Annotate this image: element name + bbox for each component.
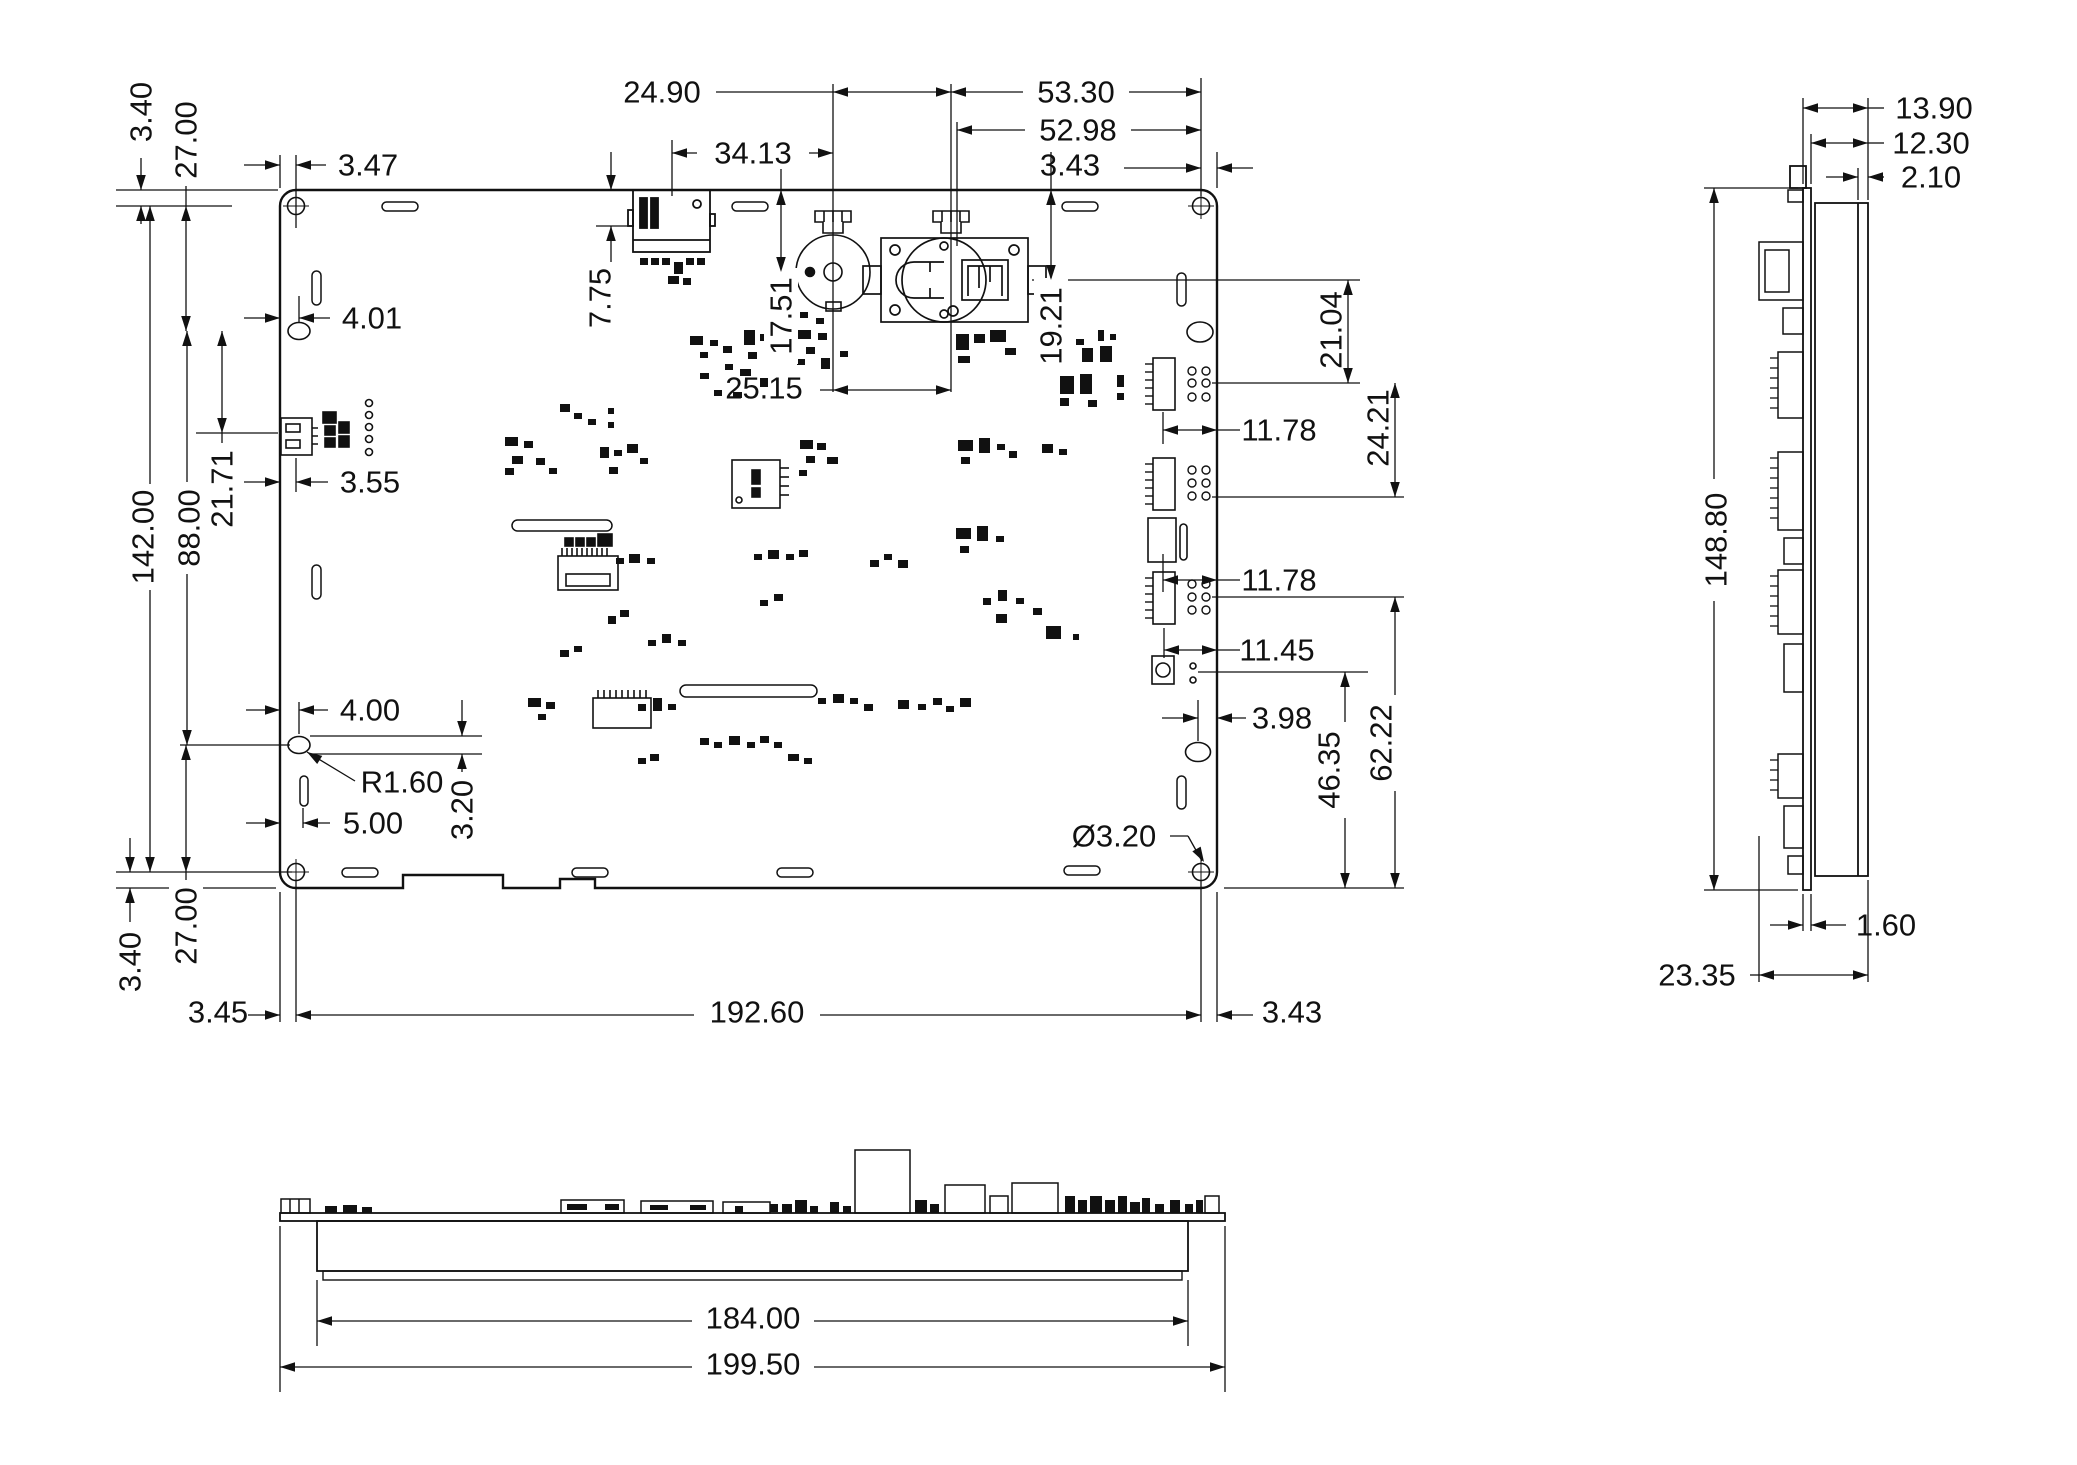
passive-component xyxy=(1059,449,1067,455)
bottom-component xyxy=(915,1200,927,1213)
passive-component xyxy=(614,450,622,456)
dim-label-h1145: 11.45 xyxy=(1239,633,1314,668)
passive-component xyxy=(1073,634,1079,640)
side-view xyxy=(1790,166,1868,890)
passive-component xyxy=(697,258,705,265)
passive-component xyxy=(840,351,848,357)
passive-component xyxy=(714,742,722,748)
dim-label-s2335: 23.35 xyxy=(1658,958,1736,993)
dim-label-v8800: 88.00 xyxy=(172,489,207,567)
passive-component xyxy=(747,742,755,748)
passive-component xyxy=(668,276,679,284)
passive-component xyxy=(816,318,824,324)
cad-drawing: 3.4027.00142.0088.0021.7127.003.403.474.… xyxy=(0,0,2077,1465)
passive-component xyxy=(505,468,514,475)
passive-component xyxy=(996,536,1004,542)
bottom-component xyxy=(1118,1196,1127,1213)
passive-component xyxy=(870,560,879,567)
passive-component xyxy=(678,640,686,646)
bottom-component xyxy=(1170,1200,1180,1213)
bottom-component xyxy=(567,1204,587,1210)
passive-component xyxy=(958,356,970,363)
dim-label-s160: 1.60 xyxy=(1856,908,1916,943)
passive-component xyxy=(674,262,683,274)
dim-label-h500: 5.00 xyxy=(343,806,403,841)
dim-label-v14200: 142.00 xyxy=(126,490,161,585)
dim-label-h343t: 3.43 xyxy=(1040,148,1100,183)
passive-component xyxy=(833,694,844,703)
bottom-component xyxy=(830,1202,839,1213)
bottom-component xyxy=(343,1205,357,1213)
left-edge-connector xyxy=(281,400,373,456)
passive-component xyxy=(760,736,769,743)
dim-label-h400: 4.00 xyxy=(340,693,400,728)
passive-component xyxy=(524,441,533,448)
bottom-display-panel xyxy=(317,1221,1188,1271)
dim-label-b19950: 199.50 xyxy=(706,1347,801,1382)
dim-label-v2104: 21.04 xyxy=(1314,291,1349,369)
passive-component xyxy=(797,359,805,365)
passive-component xyxy=(686,258,694,265)
passive-component xyxy=(1082,348,1093,362)
dim-label-t340: 3.40 xyxy=(124,82,159,142)
passive-component xyxy=(627,444,638,453)
passive-component xyxy=(1060,376,1074,394)
passive-component xyxy=(818,333,827,340)
dim-label-s1230: 12.30 xyxy=(1892,126,1970,161)
passive-component xyxy=(800,312,808,318)
dim-label-h343b: 3.43 xyxy=(1262,995,1322,1030)
passive-component xyxy=(768,550,779,559)
passive-component xyxy=(754,554,762,560)
passive-component xyxy=(729,736,740,745)
passive-component xyxy=(1005,348,1016,355)
passive-component xyxy=(620,610,629,617)
passive-component xyxy=(990,330,1006,342)
drawing-page: 3.4027.00142.0088.0021.7127.003.403.474.… xyxy=(0,0,2077,1465)
passive-component xyxy=(638,704,646,711)
passive-component xyxy=(821,358,830,369)
passive-component xyxy=(1100,346,1112,362)
passive-component xyxy=(1080,374,1092,394)
bottom-component xyxy=(782,1204,792,1213)
dim-label-h401: 4.01 xyxy=(342,301,402,336)
passive-component xyxy=(1117,375,1124,387)
passive-component xyxy=(799,470,807,476)
passive-component xyxy=(647,558,655,564)
passive-component xyxy=(588,419,596,425)
passive-component xyxy=(1098,330,1104,341)
passive-component xyxy=(804,758,812,764)
bottom-component xyxy=(650,1205,668,1210)
passive-component xyxy=(1016,598,1024,604)
passive-component xyxy=(818,698,826,704)
passive-component xyxy=(683,278,691,285)
passive-component xyxy=(505,437,518,446)
passive-component xyxy=(961,457,970,464)
dim-label-h5330: 53.30 xyxy=(1037,75,1115,110)
passive-component xyxy=(958,440,973,451)
dim-label-v4635: 46.35 xyxy=(1312,731,1347,809)
passive-components xyxy=(505,258,1124,764)
bottom-view xyxy=(280,1150,1225,1280)
passive-component xyxy=(748,352,757,359)
passive-component xyxy=(979,438,990,453)
bottom-component xyxy=(325,1206,337,1213)
dim-label-dia320: Ø3.20 xyxy=(1072,819,1156,854)
bottom-component xyxy=(795,1200,807,1213)
passive-component xyxy=(1033,608,1042,615)
battery-holder xyxy=(863,238,1046,322)
dim-label-h347: 3.47 xyxy=(338,148,398,183)
passive-component xyxy=(786,554,794,560)
passive-component xyxy=(629,554,640,563)
side-display-panel xyxy=(1815,203,1868,876)
passive-component xyxy=(1046,626,1061,639)
passive-component xyxy=(946,706,954,712)
passive-component xyxy=(574,413,582,419)
passive-component xyxy=(997,444,1005,450)
bottom-component xyxy=(362,1207,372,1213)
passive-component xyxy=(616,558,624,564)
bottom-view-small-parts xyxy=(325,1196,1203,1213)
bottom-component xyxy=(1185,1204,1193,1213)
passive-component xyxy=(799,550,808,557)
passive-component xyxy=(774,594,783,601)
main-ic-chip xyxy=(732,460,789,508)
side-view-connectors xyxy=(1759,190,1803,874)
dim-label-h1178b: 11.78 xyxy=(1241,563,1316,598)
passive-component xyxy=(651,258,659,265)
dim-label-b2700: 27.00 xyxy=(169,887,204,965)
passive-component xyxy=(609,467,618,474)
passive-component xyxy=(898,560,908,568)
passive-component xyxy=(640,258,648,265)
passive-component xyxy=(998,590,1007,601)
dim-label-s14880: 148.80 xyxy=(1699,493,1734,588)
dim-label-v320: 3.20 xyxy=(445,780,480,840)
passive-component xyxy=(608,408,614,414)
bottom-component xyxy=(1105,1200,1115,1213)
passive-component xyxy=(774,742,782,748)
passive-component xyxy=(600,447,609,458)
bottom-component xyxy=(930,1204,939,1213)
passive-component xyxy=(608,616,616,624)
passive-component xyxy=(806,456,815,463)
right-mid-connector xyxy=(1148,518,1187,562)
dim-label-h2515: 25.15 xyxy=(725,371,803,406)
dim-label-h2490: 24.90 xyxy=(623,75,701,110)
dim-label-s210: 2.10 xyxy=(1901,160,1961,195)
dim-label-t2700: 27.00 xyxy=(169,101,204,179)
passive-component xyxy=(648,640,656,646)
dimension-layer: 3.4027.00142.0088.0021.7127.003.403.474.… xyxy=(113,75,1973,1393)
dim-label-v1751: 17.51 xyxy=(764,277,799,355)
passive-component xyxy=(864,704,873,711)
passive-component xyxy=(760,600,768,606)
bottom-component xyxy=(735,1206,743,1213)
dim-label-h398: 3.98 xyxy=(1252,701,1312,736)
passive-component xyxy=(549,468,557,474)
passive-component xyxy=(898,700,909,709)
bottom-component xyxy=(843,1206,851,1213)
bottom-component xyxy=(1078,1200,1087,1213)
passive-component xyxy=(700,738,709,745)
dim-label-v2421: 24.21 xyxy=(1361,389,1396,467)
passive-component xyxy=(512,456,523,464)
passive-component xyxy=(560,650,569,657)
dim-label-b18400: 184.00 xyxy=(706,1301,801,1336)
bottom-component xyxy=(810,1206,818,1213)
dim-label-r160: R1.60 xyxy=(361,765,444,800)
dim-label-h355: 3.55 xyxy=(340,465,400,500)
passive-component xyxy=(956,528,971,539)
passive-component xyxy=(1042,444,1053,453)
passive-component xyxy=(650,754,659,761)
passive-component xyxy=(700,352,708,358)
passive-component xyxy=(817,443,826,450)
passive-component xyxy=(788,754,799,761)
passive-component xyxy=(850,698,858,704)
passive-component xyxy=(723,346,732,353)
passive-component xyxy=(1060,398,1069,406)
passive-component xyxy=(1076,339,1084,345)
passive-component xyxy=(884,554,892,560)
passive-component xyxy=(710,340,718,346)
dim-label-v2171: 21.71 xyxy=(205,450,240,528)
bottom-component xyxy=(1130,1202,1140,1213)
side-pcb xyxy=(1803,188,1811,890)
dim-label-h19260: 192.60 xyxy=(710,995,805,1030)
passive-component xyxy=(662,634,671,643)
passive-component xyxy=(983,598,991,605)
passive-component xyxy=(653,698,662,711)
passive-component xyxy=(800,440,813,449)
dim-label-h5298: 52.98 xyxy=(1039,113,1117,148)
passive-component xyxy=(977,526,988,541)
passive-component xyxy=(714,390,722,396)
push-switch xyxy=(1152,656,1196,684)
passive-component xyxy=(960,546,969,553)
dim-label-h1178a: 11.78 xyxy=(1241,413,1316,448)
bottom-pcb-bar xyxy=(280,1213,1225,1221)
passive-component xyxy=(560,404,570,412)
dim-label-v1921: 19.21 xyxy=(1034,287,1069,365)
bottom-component xyxy=(690,1205,706,1210)
dim-label-v775: 7.75 xyxy=(583,268,618,328)
passive-component xyxy=(536,458,545,465)
passive-component xyxy=(933,698,942,705)
passive-component xyxy=(918,704,926,710)
bottom-component xyxy=(1142,1198,1150,1213)
bottom-component xyxy=(605,1204,619,1210)
passive-component xyxy=(690,336,703,345)
dim-label-b340: 3.40 xyxy=(113,932,148,992)
passive-component xyxy=(574,646,582,652)
passive-component xyxy=(700,373,709,379)
dim-label-h345: 3.45 xyxy=(188,995,248,1030)
passive-component xyxy=(668,704,676,710)
passive-component xyxy=(744,330,755,345)
passive-component xyxy=(528,698,541,707)
passive-component xyxy=(725,364,733,370)
passive-component xyxy=(806,347,815,354)
passive-component xyxy=(1088,400,1097,407)
passive-component xyxy=(798,330,811,339)
sd-card-slot xyxy=(628,190,715,252)
bottom-component xyxy=(1155,1204,1164,1213)
passive-component xyxy=(960,698,971,707)
bottom-component xyxy=(1065,1196,1075,1213)
passive-component xyxy=(638,758,646,764)
passive-component xyxy=(996,614,1007,623)
passive-component xyxy=(956,334,969,350)
bottom-component xyxy=(770,1204,778,1212)
passive-component xyxy=(546,702,555,709)
passive-component xyxy=(1009,451,1017,458)
passive-component xyxy=(608,422,614,428)
passive-component xyxy=(827,457,838,464)
passive-component xyxy=(1110,334,1116,340)
bottom-component xyxy=(1196,1200,1203,1213)
passive-component xyxy=(640,458,648,464)
bottom-component xyxy=(1090,1196,1102,1213)
passive-component xyxy=(662,258,670,265)
passive-component xyxy=(1117,393,1124,400)
dim-label-v6222: 62.22 xyxy=(1364,704,1399,782)
passive-component xyxy=(538,714,546,720)
dim-label-s1390: 13.90 xyxy=(1895,91,1973,126)
dim-label-h3413: 34.13 xyxy=(714,136,792,171)
fpc-connector-mid xyxy=(558,534,618,590)
passive-component xyxy=(974,334,985,343)
